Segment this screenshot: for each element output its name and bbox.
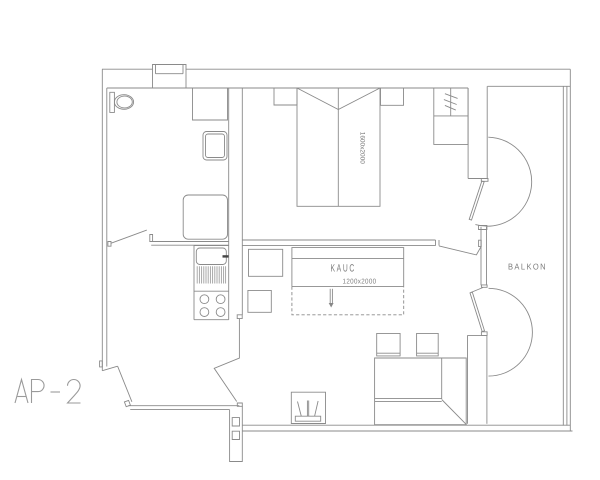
svg-text:BALKON: BALKON xyxy=(508,262,547,272)
svg-text:1200x2000: 1200x2000 xyxy=(343,278,377,285)
svg-text:1600x2000: 1600x2000 xyxy=(358,132,365,165)
svg-text:KAUC: KAUC xyxy=(331,262,357,274)
